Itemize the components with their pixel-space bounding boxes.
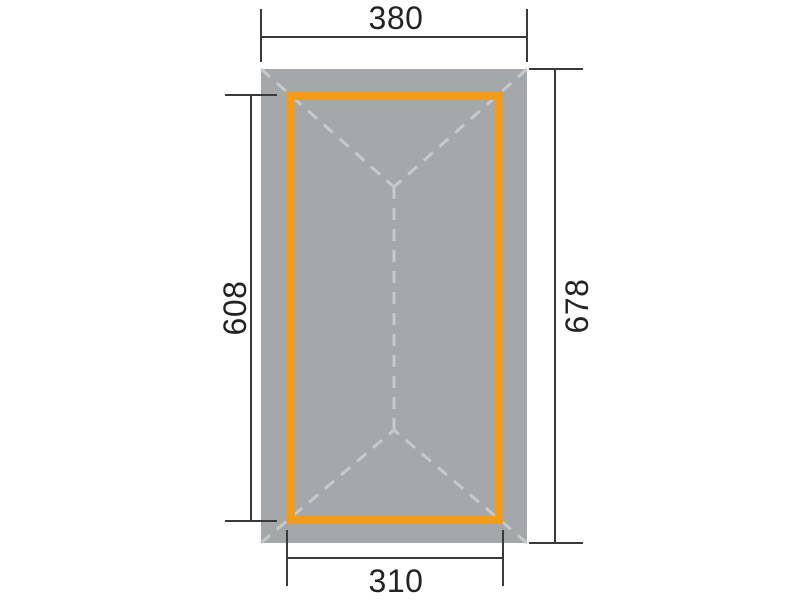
- dimension-bottom-label: 310: [369, 563, 424, 599]
- dimension-left-label: 608: [217, 281, 253, 336]
- roof-panel: [261, 69, 527, 543]
- diagram-canvas: 380 678 608 310: [0, 0, 800, 600]
- dimension-right: 678: [529, 69, 595, 543]
- plan-svg: 380 678 608 310: [0, 0, 800, 600]
- dimension-top-label: 380: [369, 0, 424, 36]
- dimension-top: 380: [261, 0, 527, 62]
- dimension-right-label: 678: [559, 279, 595, 334]
